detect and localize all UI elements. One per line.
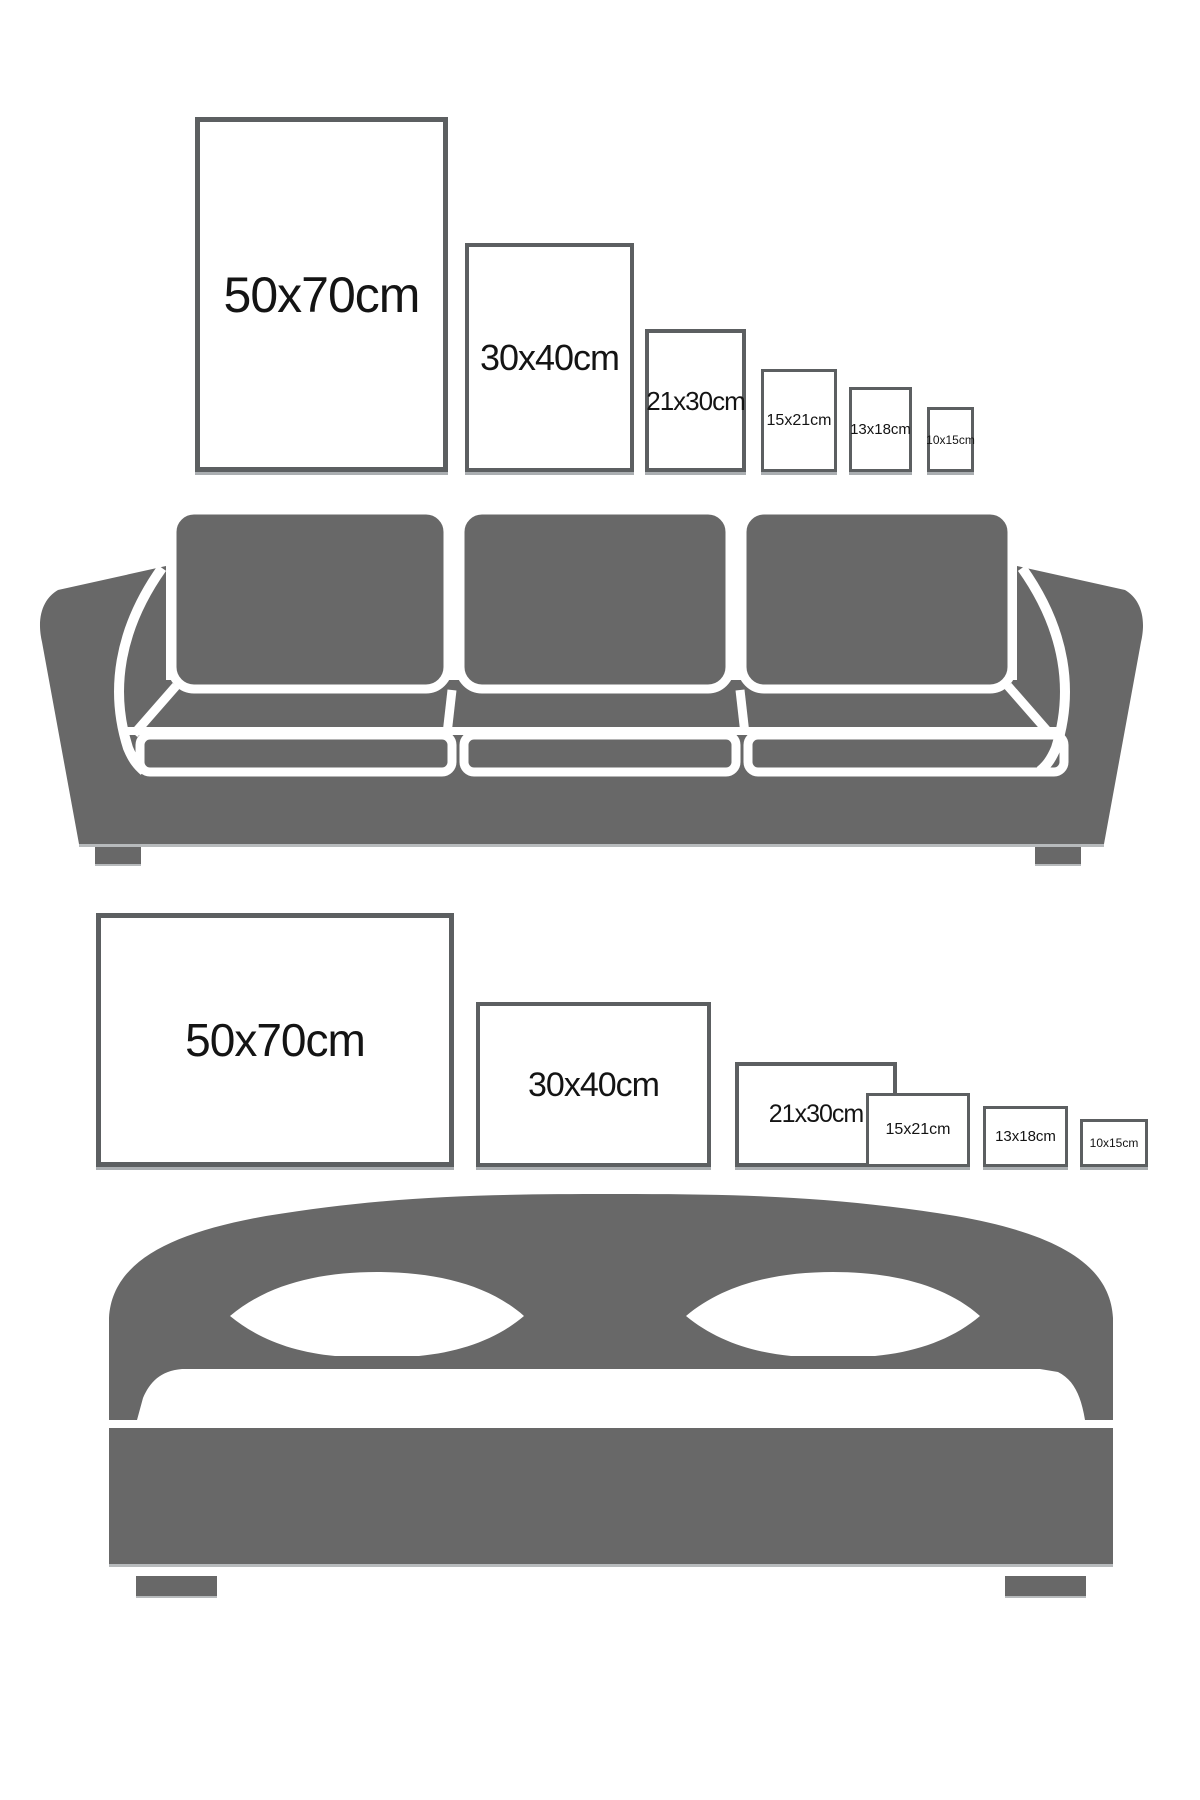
- frame-size-label: 21x30cm: [769, 1102, 863, 1127]
- frame-size-label: 50x70cm: [224, 270, 420, 320]
- frame-size-label: 30x40cm: [480, 340, 619, 376]
- sofa-seat-cushion-2: [464, 735, 736, 772]
- frame-landscape-15x21: 15x21cm: [866, 1093, 970, 1167]
- sofa-leg-right: [1035, 844, 1081, 866]
- frame-portrait-10x15: 10x15cm: [927, 407, 974, 472]
- bed-leg-left-shadow: [136, 1596, 217, 1598]
- sofa-leg-left: [95, 844, 141, 866]
- bed-headboard: [109, 1194, 1113, 1420]
- frame-landscape-13x18: 13x18cm: [983, 1106, 1068, 1167]
- frame-portrait-30x40: 30x40cm: [465, 243, 634, 472]
- frame-landscape-30x40: 30x40cm: [476, 1002, 711, 1167]
- frame-portrait-21x30: 21x30cm: [645, 329, 746, 472]
- frame-size-label: 21x30cm: [646, 388, 745, 414]
- sofa-leg-right-shadow: [1035, 864, 1081, 866]
- sofa-seat-cushion-3: [748, 735, 1064, 772]
- bed-leg-left: [136, 1576, 217, 1596]
- size-comparison-infographic: 50x70cm 30x40cm 21x30cm 15x21cm 13x18cm …: [0, 0, 1200, 1800]
- bed-base: [109, 1428, 1113, 1564]
- bed-illustration: [109, 1194, 1113, 1598]
- frame-portrait-15x21: 15x21cm: [761, 369, 837, 472]
- frame-size-label: 13x18cm: [850, 422, 911, 437]
- sofa-illustration: [40, 510, 1143, 866]
- frame-portrait-13x18: 13x18cm: [849, 387, 912, 472]
- frame-portrait-50x70: 50x70cm: [195, 117, 448, 472]
- sofa-back-cushion-3: [742, 510, 1012, 689]
- frame-size-label: 10x15cm: [1090, 1137, 1139, 1149]
- sofa-back-cushion-2: [460, 510, 730, 689]
- bed-leg-right-shadow: [1005, 1596, 1086, 1598]
- frame-landscape-10x15: 10x15cm: [1080, 1119, 1148, 1167]
- sofa-back-cushion-1: [172, 510, 448, 689]
- frame-size-label: 13x18cm: [995, 1129, 1056, 1144]
- bed-base-shadow: [109, 1564, 1113, 1567]
- frame-size-label: 30x40cm: [528, 1068, 659, 1102]
- frame-size-label: 15x21cm: [886, 1122, 951, 1138]
- frame-size-label: 10x15cm: [926, 434, 975, 446]
- sofa-leg-left-shadow: [95, 864, 141, 866]
- frame-landscape-50x70: 50x70cm: [96, 913, 454, 1167]
- frame-size-label: 15x21cm: [767, 413, 832, 429]
- frame-size-label: 50x70cm: [185, 1017, 365, 1063]
- bed-leg-right: [1005, 1576, 1086, 1596]
- sofa-seat-cushion-1: [140, 735, 452, 772]
- sofa-base-shadow: [79, 844, 1104, 847]
